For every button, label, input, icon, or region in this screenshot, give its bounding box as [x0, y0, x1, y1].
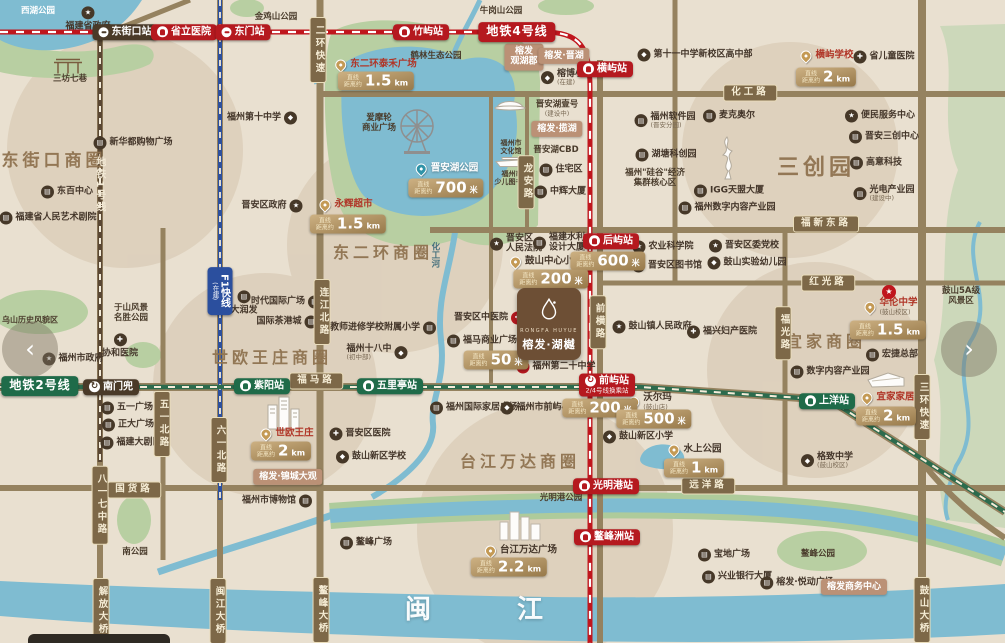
location-map: RONGFA HUYUE 榕发·湖樾 ‹ › 东街口站省立医院东门站竹屿站地铁4… — [0, 0, 1005, 643]
map-pin-icon — [483, 543, 499, 559]
poi-label: ▤福建省人民艺术剧院 — [0, 212, 97, 225]
poi-label: ◆鼓山新区小学 — [603, 431, 673, 444]
bottom-left-panel — [28, 634, 170, 643]
distance-prefix: 直线距离约 — [257, 444, 275, 458]
poi-name: 省儿童医院 — [869, 52, 914, 62]
station-badge: 省立医院 — [151, 24, 217, 40]
distance-badge: 直线距离约2km — [796, 68, 856, 87]
distance-badge: 直线距离约500米 — [616, 410, 691, 429]
distance-unit: km — [394, 78, 408, 87]
train-icon — [363, 381, 374, 392]
star-icon: ★ — [845, 110, 858, 123]
place-name: 风景区 — [948, 297, 974, 307]
distance-unit: 米 — [470, 185, 478, 194]
map-pin-icon — [508, 254, 524, 270]
redcircle-icon: ★ — [882, 285, 896, 299]
road-name: 三环快速 — [917, 382, 928, 432]
poi-subtitle: (建设中) — [869, 195, 894, 202]
pin-poi: 华伦中学(鼓山校区) — [864, 298, 917, 316]
distance-prefix: 直线距离约 — [477, 560, 495, 574]
poi-name: 水上公园 — [683, 445, 721, 456]
poi-name: 数字内容产业园 — [806, 367, 869, 377]
poi-name: 鼓山新区小学 — [619, 432, 673, 442]
building-icon: ▤ — [0, 212, 12, 225]
label: 距离约 — [670, 468, 688, 475]
poi-name: 便民服务中心 — [861, 111, 915, 121]
place-label: 爱摩轮商业广场 — [362, 114, 396, 134]
distance-value: 600 — [597, 254, 628, 269]
distance-value: 2 — [883, 409, 893, 424]
hospital-cross-icon: ✚ — [853, 51, 866, 64]
map-pin-icon — [798, 48, 814, 64]
station-name: 五里亭站 — [377, 380, 417, 392]
poi-label: ▤五一广场 — [101, 402, 153, 415]
train-icon — [399, 27, 410, 38]
transfer-icon — [585, 376, 596, 387]
station-badge: 东街口站 — [93, 24, 158, 40]
poi-label: ▤福建水利设计大厦 — [533, 233, 585, 254]
train-icon — [579, 481, 590, 492]
poi-name: 中辉大厦 — [550, 187, 586, 197]
station-name: 前屿站 — [599, 376, 629, 388]
poi-label: ◆第十一中学新校区高中部 — [637, 49, 752, 62]
poi-label: ◆鼓山实验幼儿园 — [707, 257, 786, 270]
distance-value: 500 — [643, 412, 674, 427]
poi-label: ✚晋安区医院 — [329, 428, 390, 441]
school-icon: ◆ — [284, 112, 297, 125]
poi-label: 福州十八中(初中部)◆ — [346, 344, 407, 362]
pin-poi: 晋安湖公园 — [416, 164, 479, 175]
road-name: 远洋路 — [689, 481, 727, 492]
poi-name: 晋安区政府 — [241, 201, 286, 211]
district-name: 东街口商圈 — [2, 152, 107, 172]
label: 距离约 — [470, 360, 488, 367]
place-name: 文化馆 — [501, 147, 522, 155]
label: 直线 — [802, 70, 820, 77]
poi-subtitle: (鼓山校区) — [817, 462, 848, 469]
station-badge: 前屿站2/4号线换乘站 — [579, 374, 635, 397]
gate-illustration — [53, 58, 83, 75]
distance-value: 1.5 — [365, 74, 392, 89]
project-name: 榕发商务中心 — [827, 582, 881, 592]
building-icon: ▤ — [790, 366, 803, 379]
poi-label: ◆鼓山新区学校 — [336, 451, 406, 464]
distance-prefix: 直线距离约 — [802, 70, 820, 84]
road-name: 化工路 — [731, 88, 769, 99]
building-icon: ▤ — [533, 237, 546, 250]
building-icon: ▤ — [423, 322, 436, 335]
train-icon — [805, 396, 816, 407]
poi-name: 东二环泰禾广场 — [350, 60, 417, 71]
label: 直线 — [344, 74, 362, 81]
poi-label: ✚省儿童医院 — [853, 51, 914, 64]
poi-name: 鼓山镇人民政府 — [628, 322, 691, 332]
distance-prefix: 直线距离约 — [344, 74, 362, 88]
road-label: 三环快速 — [914, 374, 931, 440]
poi-name: 正大广场 — [118, 420, 154, 430]
distance-badge: 直线距离约2km — [856, 407, 916, 426]
poi-name: 教师进修学校附属小学 — [330, 323, 420, 333]
building-icon: ▤ — [340, 537, 353, 550]
distance-unit: 米 — [575, 276, 583, 285]
place-name: 鹤林生态公园 — [410, 52, 461, 62]
pin-poi: 永辉超市 — [319, 200, 372, 211]
poi-label: ▤宏捷总部 — [866, 349, 918, 362]
poi-name: 宏捷总部 — [882, 350, 918, 360]
label: 距离约 — [519, 279, 537, 286]
poi-subtitle: (在建) — [557, 79, 575, 86]
poi-label: 福州市博物馆▤ — [242, 495, 312, 508]
star-icon: ★ — [290, 200, 303, 213]
map-pin-icon — [859, 390, 875, 406]
place-name: 集群核心区 — [634, 179, 677, 189]
place-label: 金鸡山公园 — [255, 13, 298, 23]
station-badge: 横屿站 — [577, 61, 633, 77]
distance-unit: 米 — [632, 258, 640, 267]
poi-name: 鼓山实验幼儿园 — [723, 258, 786, 268]
distance-prefix: 直线距离约 — [862, 409, 880, 423]
station-name: 南门兜 — [103, 381, 133, 393]
poi-label: 时代国际广场▤ — [251, 296, 321, 309]
carousel-next-button[interactable]: › — [941, 321, 997, 377]
district-label: 江 — [517, 596, 545, 626]
poi-name: 晋安区 — [506, 234, 533, 244]
label: 距离约 — [414, 188, 432, 195]
train-icon — [580, 532, 591, 543]
poi-name: 五一广场 — [117, 403, 153, 413]
road-label: 八一七中路 — [92, 466, 109, 545]
road-label: 五一北路 — [154, 391, 171, 457]
dome-illustration — [493, 96, 527, 111]
road-label: 连江北路 — [314, 279, 331, 345]
place-label: 鹤林生态公园 — [410, 52, 461, 62]
label: 直线 — [257, 444, 275, 451]
place-name: 南公园 — [122, 548, 148, 558]
distance-unit: km — [704, 465, 718, 474]
distance-unit: km — [906, 327, 920, 336]
poi-label: ★便民服务中心 — [845, 110, 915, 123]
poi-label: ▤正大广场 — [102, 419, 154, 432]
poi-name: 永辉超市 — [334, 200, 372, 211]
road-name: 闽江大桥 — [213, 586, 224, 636]
road-name: 国货路 — [115, 485, 153, 496]
school-icon: ◆ — [707, 257, 720, 270]
road-label: 六一北路 — [211, 417, 228, 483]
map-pin-icon — [333, 57, 349, 73]
label: 距离约 — [802, 77, 820, 84]
distance-unit: 米 — [678, 416, 686, 425]
pin-poi: 宜家家居 — [861, 393, 914, 404]
building-icon: ▤ — [41, 186, 54, 199]
poi-label: ▤福州软件园(晋安分园) — [634, 112, 695, 130]
place-name: 鳌峰公园 — [801, 550, 835, 560]
distance-unit: km — [836, 74, 850, 83]
road-name: 五一北路 — [157, 399, 168, 449]
poi-name: 世欧王庄 — [275, 429, 313, 440]
train-icon — [157, 27, 168, 38]
station-name: 省立医院 — [171, 26, 211, 38]
distance-unit: km — [366, 221, 380, 230]
building-icon: ▤ — [694, 185, 707, 198]
project-badge: 榕发·锦城大观 — [253, 469, 322, 485]
station-name: 东门站 — [235, 26, 265, 38]
station-name: F1快线 — [218, 274, 230, 308]
hospital-cross-icon: ✚ — [687, 326, 700, 339]
distance-value: 1 — [691, 461, 701, 476]
place-name: 福州市 — [501, 139, 522, 147]
district-label: 闽 — [405, 596, 433, 626]
label: 直线 — [576, 254, 594, 261]
carousel-prev-button[interactable]: ‹ — [2, 321, 58, 377]
distance-value: 2 — [823, 70, 833, 85]
building-icon: ▤ — [698, 549, 711, 562]
district-label: 东二环商圈 — [333, 244, 433, 262]
poi-name: 湖塘科创园 — [651, 150, 696, 160]
poi-subtitle: (晋安分园) — [650, 122, 681, 129]
station-name: 光明港站 — [593, 480, 633, 492]
label: 直线 — [477, 560, 495, 567]
place-subtitle: (建设中) — [545, 110, 570, 117]
distance-value: 50 — [491, 353, 512, 368]
station-subtitle: (在建) — [211, 282, 218, 300]
road-label: 龙安路 — [518, 155, 535, 209]
poi-name: 福建省人民艺术剧院 — [15, 213, 96, 223]
building-icon: ▤ — [702, 571, 715, 584]
road-name: 连江北路 — [317, 287, 328, 337]
project-name-cn: 榕发·湖樾 — [522, 336, 575, 352]
ikea-illustration — [866, 370, 906, 390]
place-label: 牛岗山公园 — [480, 7, 523, 17]
station-name: 东街口站 — [112, 26, 152, 38]
station-name: 竹屿站 — [413, 26, 443, 38]
building-icon: ▤ — [635, 149, 648, 162]
distance-badge: 直线距离约200米 — [513, 270, 588, 289]
distance-prefix: 直线距离约 — [316, 217, 334, 231]
road-label: 前横路 — [590, 295, 607, 349]
station-name: 横屿站 — [597, 63, 627, 75]
wanda-illustration — [498, 508, 544, 542]
star-icon: ★ — [709, 240, 722, 253]
place-label: 福州市文化馆 — [501, 139, 522, 155]
poi-name: 福马商业广场 — [463, 336, 517, 346]
building-icon: ▤ — [866, 349, 879, 362]
label: 距离约 — [622, 419, 640, 426]
distance-value: 2.2 — [498, 560, 525, 575]
road-label: 红光路 — [801, 275, 855, 292]
place-label: 南公园 — [122, 548, 148, 558]
distance-unit: km — [896, 413, 910, 422]
project-badge: 榕发商务中心 — [821, 579, 887, 595]
metro-roundel-icon — [222, 27, 232, 37]
distance-badge: 直线距离约2km — [251, 442, 311, 461]
district-name: 世欧王庄商圈 — [212, 349, 332, 367]
label: 直线 — [622, 412, 640, 419]
station-badge: 鳌峰洲站 — [574, 529, 640, 545]
school-icon: ◆ — [336, 451, 349, 464]
project-name: 榕发·晋湖 — [544, 51, 583, 61]
school-icon: ◆ — [541, 72, 554, 85]
place-name: 西湖公园 — [21, 7, 55, 17]
building-icon: ▤ — [102, 419, 115, 432]
poi-label: 福州第十中学◆ — [227, 112, 297, 125]
towers-illustration — [266, 395, 306, 431]
poi-label: 晋安区政府★ — [241, 200, 302, 213]
label: 距离约 — [477, 567, 495, 574]
poi-label: ▤鳌峰广场 — [340, 537, 392, 550]
pin-poi: 横屿学校 — [800, 51, 853, 62]
building-icon: ▤ — [634, 115, 647, 128]
district-name: 台江万达商圈 — [460, 453, 580, 471]
star-icon: ★ — [612, 321, 625, 334]
poi-label: ▤东百中心 — [41, 186, 93, 199]
poi-label: ▤福州数字内容产业园 — [678, 202, 775, 215]
road-label: 闽江大桥 — [210, 578, 227, 643]
distance-prefix: 直线距离约 — [414, 181, 432, 195]
star-icon: ★ — [490, 238, 503, 251]
poi-subtitle: (初中部) — [346, 354, 371, 361]
building-icon: ▤ — [678, 202, 691, 215]
road-label: 福马路 — [289, 373, 343, 390]
poi-name: 高意科技 — [866, 158, 902, 168]
road-name: 福马路 — [297, 376, 335, 387]
school-icon: ◆ — [500, 402, 513, 415]
place-name: 商业广场 — [362, 124, 396, 134]
road-name: 福光路 — [778, 314, 789, 352]
station-subtitle: 2/4号线换乘站 — [586, 387, 629, 394]
station-badge: 五里亭站 — [357, 378, 423, 394]
place-label: 地铁1号线 — [93, 157, 105, 214]
poi-label: ▤福马商业广场 — [447, 335, 517, 348]
distance-badge: 直线距离约1.5km — [850, 321, 926, 340]
project-name: 观湖郡 — [510, 57, 537, 67]
label: 直线 — [470, 353, 488, 360]
metro-roundel-icon — [99, 27, 109, 37]
place-label: 光明港公园 — [540, 494, 583, 504]
district-label: 东街口商圈 — [2, 152, 107, 172]
place-name: 名胜公园 — [114, 314, 148, 324]
poi-name: 宜家家居 — [876, 393, 914, 404]
road-label: 国货路 — [107, 482, 161, 499]
poi-name: 鼓山新区学校 — [352, 452, 406, 462]
road-name: 八一七中路 — [95, 474, 106, 537]
project-name-en: RONGFA HUYUE — [520, 328, 578, 334]
poi-name: 协和医院 — [102, 348, 138, 358]
metro-line-badge: 地铁4号线 — [478, 22, 555, 42]
poi-label: ▤宝地广场 — [698, 549, 750, 562]
poi-label: ▤福建大剧院 — [100, 437, 161, 450]
poi-name: 福兴妇产医院 — [703, 327, 757, 337]
map-pin-icon — [666, 442, 682, 458]
poi-name: 福州市博物馆 — [242, 496, 296, 506]
road-name: 二环快速 — [313, 25, 324, 75]
place-name: 晋安湖CBD — [533, 146, 578, 156]
building-icon: ▤ — [853, 188, 866, 201]
poi-name: IGG天盟大厦 — [710, 186, 764, 196]
poi-name: 宝地广场 — [714, 550, 750, 560]
poi-label: ★晋安区委党校 — [709, 240, 779, 253]
label: 距离约 — [862, 416, 880, 423]
distance-prefix: 直线距离约 — [519, 272, 537, 286]
place-name: 牛岗山公园 — [480, 7, 523, 17]
distance-prefix: 直线距离约 — [576, 254, 594, 268]
poi-label: ▤住宅区 — [539, 164, 582, 177]
station-badge: 南门兜 — [83, 379, 139, 395]
label: 距离约 — [257, 451, 275, 458]
building-icon: ▤ — [534, 186, 547, 199]
station-badge: 紫阳站 — [234, 378, 290, 394]
poi-name: 新华都购物广场 — [109, 138, 172, 148]
poi-name: 晋安区医院 — [345, 429, 390, 439]
place-name: 三坊七巷 — [53, 75, 87, 85]
building-icon: ▤ — [93, 137, 106, 150]
poi-name: 鳌峰广场 — [356, 538, 392, 548]
chevron-left-icon: ‹ — [25, 335, 35, 363]
building-icon: ▤ — [850, 157, 863, 170]
poi-name: 福州第十中学 — [227, 113, 281, 123]
road-name: 鼓山大桥 — [917, 585, 928, 635]
map-pin-icon — [862, 299, 878, 315]
poi-name: 住宅区 — [555, 165, 582, 175]
distance-unit: km — [527, 564, 541, 573]
poi-name: 时代国际广场 — [251, 297, 305, 307]
train-icon — [583, 64, 594, 75]
poi-label: ▤晋安三创中心 — [849, 131, 919, 144]
place-label: 晋安湖CBD — [533, 146, 578, 156]
hospital-cross-icon: ✚ — [329, 428, 342, 441]
station-name: 上洋站 — [819, 395, 849, 407]
station-name: 鳌峰洲站 — [594, 531, 634, 543]
poi-label: ▤麦克奥尔 — [703, 110, 755, 123]
distance-prefix: 直线距离约 — [670, 461, 688, 475]
poi-name: 晋安区图书馆 — [648, 261, 702, 271]
road-name: 红光路 — [809, 278, 847, 289]
district-name: 闽 — [405, 596, 433, 626]
label: 距离约 — [856, 330, 874, 337]
hospital-cross-icon: ✚ — [113, 333, 126, 346]
label: 距离约 — [344, 81, 362, 88]
poi-name: 福州市政府 — [58, 354, 103, 364]
poi-label: ▤大润发 — [230, 290, 257, 315]
school-icon: ◆ — [801, 455, 814, 468]
building-icon: ▤ — [430, 402, 443, 415]
metro-line-badge: 地铁2号线 — [1, 376, 78, 396]
road-label: 鳌峰大桥 — [313, 577, 330, 643]
poi-name: 第十一中学新校区高中部 — [653, 50, 752, 60]
poi-label: ▤IGG天盟大厦 — [694, 185, 764, 198]
poi-label: 国际茶港城▤ — [256, 316, 317, 329]
place-label: 西湖公园 — [21, 7, 55, 17]
road-name: 鳌峰大桥 — [316, 585, 327, 635]
district-name: 三创园 — [777, 155, 855, 180]
poi-name: 福建水利 — [549, 233, 585, 243]
tower-illustration — [716, 135, 738, 181]
building-icon: ▤ — [101, 402, 114, 415]
distance-prefix: 直线距离约 — [622, 412, 640, 426]
building-icon: ▤ — [539, 164, 552, 177]
label: 直线 — [568, 401, 586, 408]
distance-value: 1.5 — [337, 217, 364, 232]
distance-badge: 直线距离约2.2km — [471, 558, 547, 577]
map-pin-icon — [413, 161, 429, 177]
place-name: 光明港公园 — [540, 494, 583, 504]
road-label: 福光路 — [775, 306, 792, 360]
poi-label: ▤高意科技 — [850, 157, 902, 170]
building-icon: ▤ — [100, 437, 113, 450]
pin-poi: 东二环泰禾广场 — [335, 60, 417, 71]
label: 直线 — [862, 409, 880, 416]
poi-label: ▤光电产业园(建设中) — [853, 185, 914, 203]
ferris-illustration — [394, 106, 440, 156]
